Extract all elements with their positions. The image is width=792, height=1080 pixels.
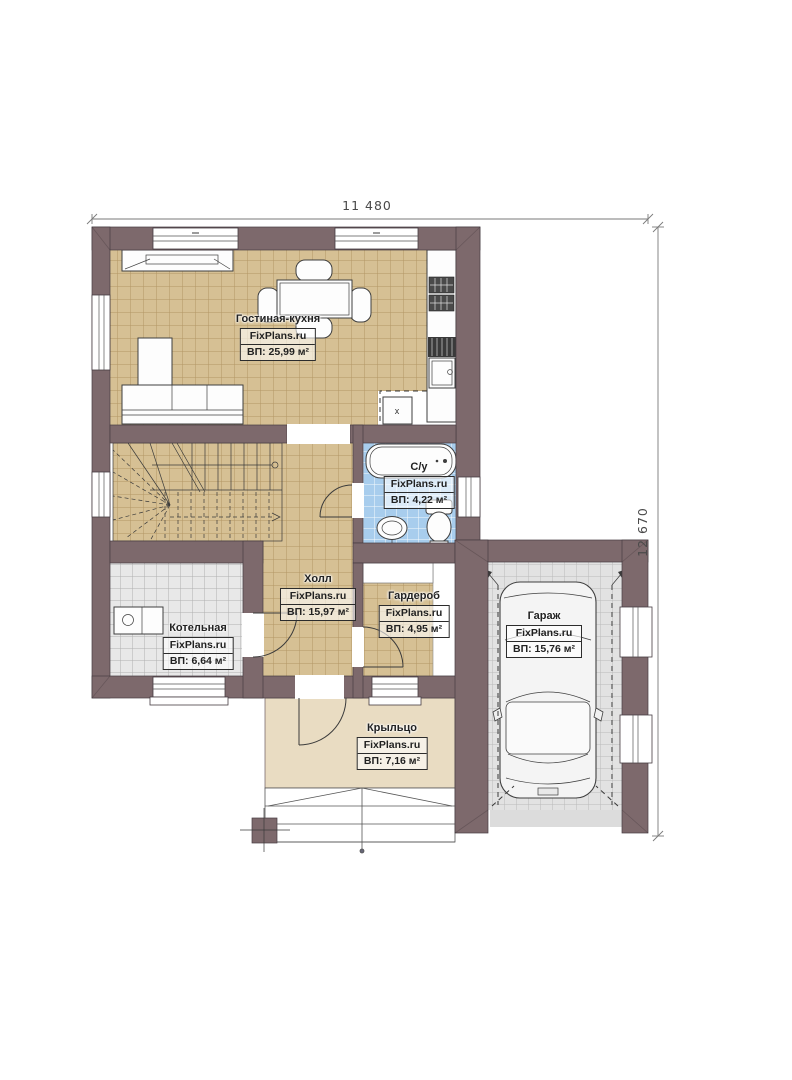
appliance-box: x — [383, 397, 412, 424]
room-label-hall: Холл FixPlans.ru ВП: 15,97 м² — [280, 573, 356, 621]
appliance-marker: x — [395, 406, 400, 416]
room-brand: FixPlans.ru — [358, 738, 427, 753]
boiler-unit — [114, 607, 163, 634]
room-label-living: Гостиная-кухня FixPlans.ru ВП: 25,99 м² — [236, 313, 320, 361]
room-label-wardrobe: Гардероб FixPlans.ru ВП: 4,95 м² — [379, 590, 450, 638]
porch-steps — [265, 788, 455, 853]
dimension-height: 12 670 — [635, 507, 650, 557]
room-name: Котельная — [163, 622, 234, 635]
room-name: Холл — [280, 573, 356, 586]
room-area: ВП: 4,95 м² — [380, 621, 449, 637]
floor-plan-drawing: x — [0, 0, 792, 1080]
tv-console — [122, 250, 233, 271]
floor-plan-page: x — [0, 0, 792, 1080]
room-name: Гараж — [506, 610, 582, 623]
room-area: ВП: 4,22 м² — [385, 492, 454, 508]
room-name: Гардероб — [379, 590, 450, 603]
room-label-boiler: Котельная FixPlans.ru ВП: 6,64 м² — [163, 622, 234, 670]
room-brand: FixPlans.ru — [164, 638, 233, 653]
dimension-width: 11 480 — [342, 198, 392, 213]
room-area: ВП: 7,16 м² — [358, 753, 427, 769]
room-area: ВП: 15,76 м² — [507, 641, 581, 657]
room-label-bathroom: С/у FixPlans.ru ВП: 4,22 м² — [384, 461, 455, 509]
wardrobe-shelf — [363, 563, 433, 583]
room-brand: FixPlans.ru — [241, 329, 315, 344]
room-brand: FixPlans.ru — [281, 589, 355, 604]
room-brand: FixPlans.ru — [507, 626, 581, 641]
room-name: Гостиная-кухня — [236, 313, 320, 326]
room-label-porch: Крыльцо FixPlans.ru ВП: 7,16 м² — [357, 722, 428, 770]
room-name: С/у — [384, 461, 455, 474]
room-area: ВП: 25,99 м² — [241, 344, 315, 360]
room-area: ВП: 6,64 м² — [164, 653, 233, 669]
room-area: ВП: 15,97 м² — [281, 604, 355, 620]
room-brand: FixPlans.ru — [385, 477, 454, 492]
room-name: Крыльцо — [357, 722, 428, 735]
room-label-garage: Гараж FixPlans.ru ВП: 15,76 м² — [506, 610, 582, 658]
room-brand: FixPlans.ru — [380, 606, 449, 621]
